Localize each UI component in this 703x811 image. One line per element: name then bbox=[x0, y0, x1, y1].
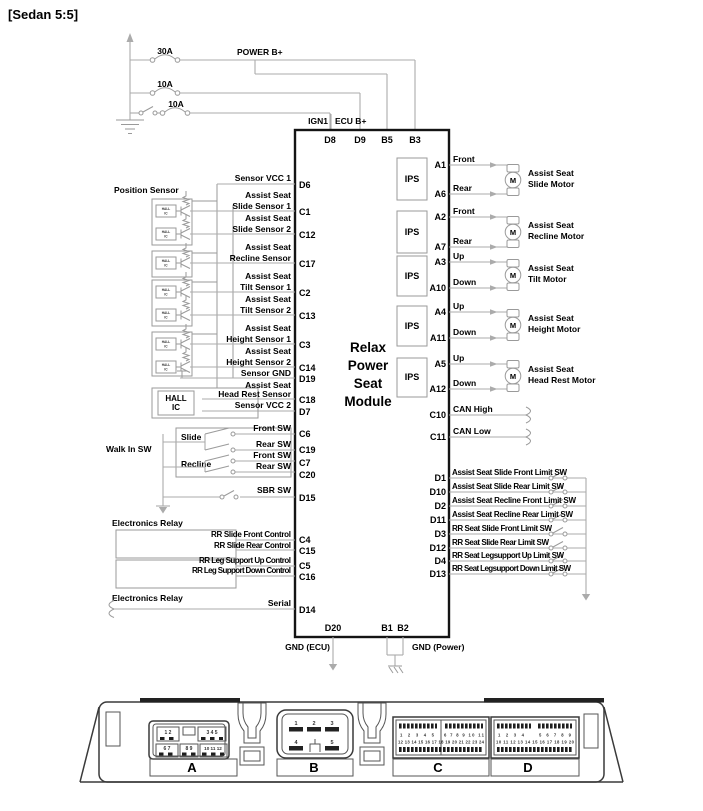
wire-label: Assist Seat Slide Front Limit SW bbox=[452, 468, 567, 477]
direction-label: Rear bbox=[453, 183, 473, 193]
module-pin: D7 bbox=[299, 407, 311, 417]
wiring-diagram-page: HALL IC M [Sedan 5:5] bbox=[0, 0, 703, 811]
module-pin: C14 bbox=[299, 363, 316, 373]
page-title: [Sedan 5:5] bbox=[8, 7, 78, 22]
module-pin: A3 bbox=[434, 257, 446, 267]
module-pin: C11 bbox=[430, 432, 446, 442]
gnd-ecu-label: GND (ECU) bbox=[285, 642, 330, 652]
module-pin: C12 bbox=[299, 230, 316, 240]
module-pin: D14 bbox=[299, 605, 316, 615]
connector-label: A bbox=[187, 760, 197, 775]
motor-label: Assist Seat bbox=[528, 263, 574, 273]
motor-icon bbox=[505, 310, 521, 341]
module-pin: A4 bbox=[434, 307, 446, 317]
connector-label: D bbox=[523, 760, 532, 775]
wire-label: SBR SW bbox=[257, 485, 292, 495]
module-pin: C17 bbox=[299, 259, 316, 269]
pin-number: 5 bbox=[330, 740, 333, 746]
module-pin: D8 bbox=[324, 135, 336, 145]
wire-label: Assist Seat bbox=[245, 323, 291, 333]
module-pin: C6 bbox=[299, 429, 311, 439]
pin-number: 2 bbox=[312, 721, 315, 727]
module-pin: D13 bbox=[429, 569, 446, 579]
connector-d: 1 2 3 4 5 6 7 8 9 10 11 12 13 14 15 16 1… bbox=[491, 717, 579, 776]
module-pin: C19 bbox=[299, 445, 316, 455]
mount-tower bbox=[358, 703, 386, 765]
module-pin: D9 bbox=[354, 135, 366, 145]
module-pin: A11 bbox=[430, 333, 446, 343]
module-pin: D12 bbox=[429, 543, 446, 553]
module-name: Module bbox=[344, 394, 392, 409]
walk-in-switch-block: Walk In SW Slide Recline Front SW C6 bbox=[106, 423, 316, 514]
module-pin: A7 bbox=[434, 242, 446, 252]
connector-b: 1 2 3 4 5 B bbox=[277, 710, 353, 776]
pin-number: 1 bbox=[294, 721, 297, 727]
pin-numbers: 6 7 8 9 10 11 bbox=[444, 733, 485, 738]
wire-label: RR Slide Front Control bbox=[211, 530, 291, 539]
wire-label: RR Slide Rear Control bbox=[214, 541, 291, 550]
wire-label: Recline Sensor bbox=[230, 253, 292, 263]
wire-label: Serial bbox=[268, 598, 291, 608]
motor-icon bbox=[505, 165, 521, 196]
fuse-rating: 10A bbox=[168, 99, 184, 109]
wire-label: Slide Sensor 2 bbox=[232, 224, 291, 234]
wire-label: Sensor GND bbox=[241, 368, 291, 378]
ips-label: IPS bbox=[405, 271, 420, 281]
pin-numbers: 8 9 bbox=[186, 746, 193, 752]
ground-icon bbox=[582, 594, 590, 601]
motor-label: Recline Motor bbox=[528, 231, 585, 241]
module-pin: A2 bbox=[434, 212, 446, 222]
direction-label: Up bbox=[453, 301, 464, 311]
pin-numbers: 6 7 bbox=[164, 746, 171, 752]
pin-numbers: 3 4 5 bbox=[206, 730, 217, 736]
relay-label: Electronics Relay bbox=[112, 593, 183, 603]
direction-label: Down bbox=[453, 327, 476, 337]
module-pin: D11 bbox=[430, 515, 446, 525]
connector-a: 1 2 3 4 5 6 7 8 9 10 11 12 A bbox=[149, 721, 237, 776]
wire-label: Sensor VCC 1 bbox=[235, 173, 291, 183]
module-pin: D2 bbox=[434, 501, 446, 511]
ips-label: IPS bbox=[405, 321, 420, 331]
slide-label: Slide bbox=[181, 432, 202, 442]
wire-label: Front SW bbox=[253, 423, 292, 433]
motor-label: Assist Seat bbox=[528, 220, 574, 230]
module-pin: B1 bbox=[381, 623, 393, 633]
hall-sensor-icon bbox=[156, 295, 190, 321]
pin-numbers: 1 2 3 4 5 bbox=[400, 733, 435, 738]
direction-label: Down bbox=[453, 378, 476, 388]
wire-label: Head Rest Sensor bbox=[218, 389, 291, 399]
module-pin: A6 bbox=[434, 189, 446, 199]
wire-label: Assist Seat Recline Front Limit SW bbox=[452, 496, 576, 505]
hall-ic-label: IC bbox=[172, 403, 180, 412]
module-pin: C15 bbox=[299, 546, 316, 556]
wire-label: Assist Seat bbox=[245, 271, 291, 281]
wire-label: Rear SW bbox=[256, 439, 292, 449]
module-pin: A10 bbox=[429, 283, 446, 293]
pin-numbers: 12 13 14 15 16 17 18 19 20 21 22 23 24 bbox=[398, 740, 485, 745]
module-pin: D3 bbox=[434, 529, 446, 539]
wire-label: RR Leg Support Down Control bbox=[192, 566, 291, 575]
wire-label: RR Seat Slide Rear Limit SW bbox=[452, 538, 549, 547]
module-pin: C1 bbox=[299, 207, 311, 217]
hall-sensor-icon bbox=[156, 214, 190, 240]
pin-numbers: 10 11 12 13 14 15 16 17 18 19 20 bbox=[496, 740, 575, 745]
motor-icon bbox=[505, 260, 521, 291]
pin-number: 4 bbox=[294, 740, 298, 746]
limit-switch-block: D1 Assist Seat Slide Front Limit SW D10 … bbox=[429, 468, 590, 601]
module-pin: C2 bbox=[299, 288, 311, 298]
module-pin: D20 bbox=[325, 623, 342, 633]
wire-label: RR Leg Support Up Control bbox=[199, 556, 291, 565]
sbr-switch-icon bbox=[220, 491, 238, 500]
pin-numbers: 1 2 3 4 bbox=[498, 733, 525, 738]
relax-power-seat-module: D8 D9 B5 B3 Relax Power Seat Module bbox=[295, 130, 449, 637]
hall-sensor-icon bbox=[156, 243, 190, 269]
motor-label: Assist Seat bbox=[528, 364, 574, 374]
chassis-ground-icon bbox=[388, 666, 403, 673]
wire-label: Rear SW bbox=[256, 461, 292, 471]
electronics-relay-block: Electronics Relay Electronics Relay RR S… bbox=[112, 518, 316, 603]
wire-label: Assist Seat Recline Rear Limit SW bbox=[452, 510, 573, 519]
wire-label: Assist Seat Slide Rear Limit SW bbox=[452, 482, 564, 491]
motor-label: Head Rest Motor bbox=[528, 375, 596, 385]
ignition-switch-icon bbox=[139, 107, 157, 116]
module-pin: C4 bbox=[299, 535, 311, 545]
twisted-pair-icon bbox=[526, 429, 531, 445]
ecu-b-label: ECU B+ bbox=[335, 116, 366, 126]
motor-label: Tilt Motor bbox=[528, 274, 567, 284]
module-pin: A5 bbox=[434, 359, 446, 369]
motor-label: Height Motor bbox=[528, 324, 581, 334]
wire-label: CAN Low bbox=[453, 426, 491, 436]
fuse-rating: 10A bbox=[157, 79, 173, 89]
relay-label: Electronics Relay bbox=[112, 518, 183, 528]
wire-label: Slide Sensor 1 bbox=[232, 201, 291, 211]
wire-label: Height Sensor 1 bbox=[226, 334, 291, 344]
connector-label: B bbox=[309, 760, 318, 775]
wire-label: RR Seat Legsupport Up Limit SW bbox=[452, 551, 564, 560]
direction-label: Rear bbox=[453, 236, 473, 246]
wire-label: Assist Seat bbox=[245, 294, 291, 304]
module-pin: D10 bbox=[429, 487, 446, 497]
motor-icon bbox=[505, 217, 521, 248]
direction-label: Up bbox=[453, 251, 464, 261]
module-pin: A1 bbox=[434, 160, 446, 170]
hall-ic-label: HALL bbox=[165, 394, 186, 403]
pin-number: 3 bbox=[330, 721, 333, 727]
module-pin: C16 bbox=[299, 572, 316, 582]
motor-label: Assist Seat bbox=[528, 168, 574, 178]
connector-figure: 1 2 3 4 5 6 7 8 9 10 11 12 A 1 2 3 4 5 bbox=[80, 698, 623, 782]
wire-label: Assist Seat bbox=[245, 346, 291, 356]
direction-label: Front bbox=[453, 154, 475, 164]
wire-label: Front SW bbox=[253, 450, 292, 460]
direction-label: Up bbox=[453, 353, 464, 363]
module-name: Relax bbox=[350, 340, 387, 355]
module-pin: C5 bbox=[299, 561, 311, 571]
module-name: Seat bbox=[354, 376, 383, 391]
module-pin: C18 bbox=[299, 395, 316, 405]
wire-label: Tilt Sensor 1 bbox=[240, 282, 291, 292]
motor-label: Slide Motor bbox=[528, 179, 575, 189]
pin-numbers: 1 2 bbox=[165, 730, 172, 736]
wire-label: RR Seat Slide Front Limit SW bbox=[452, 524, 552, 533]
hall-sensor-icon bbox=[156, 347, 190, 373]
wire-label: Assist Seat bbox=[245, 242, 291, 252]
module-pin: D15 bbox=[299, 493, 316, 503]
module-pin: C20 bbox=[299, 470, 316, 480]
module-pin: C3 bbox=[299, 340, 311, 350]
wire-label: Assist Seat bbox=[245, 190, 291, 200]
serial-coil-icon bbox=[109, 601, 114, 618]
relax-power-seat-schematic: HALL IC M [Sedan 5:5] bbox=[0, 0, 703, 811]
mount-tower bbox=[238, 703, 266, 765]
wire-label: Sensor VCC 2 bbox=[235, 400, 291, 410]
wire-label: Height Sensor 2 bbox=[226, 357, 291, 367]
power-b-label: POWER B+ bbox=[237, 47, 283, 57]
twisted-pair-icon bbox=[526, 407, 531, 423]
module-pin: C13 bbox=[299, 311, 316, 321]
gnd-power-label: GND (Power) bbox=[412, 642, 465, 652]
module-name: Power bbox=[348, 358, 389, 373]
module-pin: B5 bbox=[381, 135, 393, 145]
motor-icon bbox=[505, 361, 521, 392]
direction-label: Down bbox=[453, 277, 476, 287]
direction-label: Front bbox=[453, 206, 475, 216]
ips-label: IPS bbox=[405, 174, 420, 184]
hall-sensor-icon bbox=[156, 324, 190, 350]
module-pin: D1 bbox=[434, 473, 446, 483]
module-pin: B3 bbox=[409, 135, 421, 145]
ips-label: IPS bbox=[405, 372, 420, 382]
battery-feed-arrow-icon bbox=[127, 33, 134, 42]
module-pin: B2 bbox=[397, 623, 409, 633]
wire-label: Tilt Sensor 2 bbox=[240, 305, 291, 315]
fuse-rating: 30A bbox=[157, 46, 173, 56]
ground-icon bbox=[329, 664, 337, 671]
power-supply-section: 30A 10A 10A POWER B+ IGN1 ECU B+ bbox=[116, 33, 415, 134]
wire-label: RR Seat Legsupport Down Limit SW bbox=[452, 564, 571, 573]
ips-motor-block: IPS IPS IPS IPS IPS A1 A6 Front Rear Ass… bbox=[397, 154, 596, 397]
wire-label: Assist Seat bbox=[245, 213, 291, 223]
pin-numbers: 5 6 7 8 9 bbox=[539, 733, 572, 738]
module-pin: D19 bbox=[299, 374, 316, 384]
module-pin: C7 bbox=[299, 458, 311, 468]
pin-numbers: 10 11 12 bbox=[204, 746, 222, 751]
connector-c: 1 2 3 4 5 6 7 8 9 10 11 12 13 14 15 16 1… bbox=[393, 717, 489, 776]
wire-label: CAN High bbox=[453, 404, 493, 414]
ign1-label: IGN1 bbox=[308, 116, 328, 126]
position-sensor-label: Position Sensor bbox=[114, 185, 179, 195]
position-sensor-block: Position Sensor bbox=[114, 173, 316, 418]
module-pin: C10 bbox=[429, 410, 446, 420]
hall-sensor-icon bbox=[156, 272, 190, 298]
module-pin: D6 bbox=[299, 180, 311, 190]
motor-label: Assist Seat bbox=[528, 313, 574, 323]
connector-label: C bbox=[433, 760, 443, 775]
ips-label: IPS bbox=[405, 227, 420, 237]
ground-icon bbox=[159, 507, 167, 514]
module-pin: D4 bbox=[434, 556, 446, 566]
battery-ground-icon bbox=[116, 120, 144, 134]
walk-in-sw-label: Walk In SW bbox=[106, 444, 152, 454]
module-pin: A12 bbox=[429, 384, 446, 394]
